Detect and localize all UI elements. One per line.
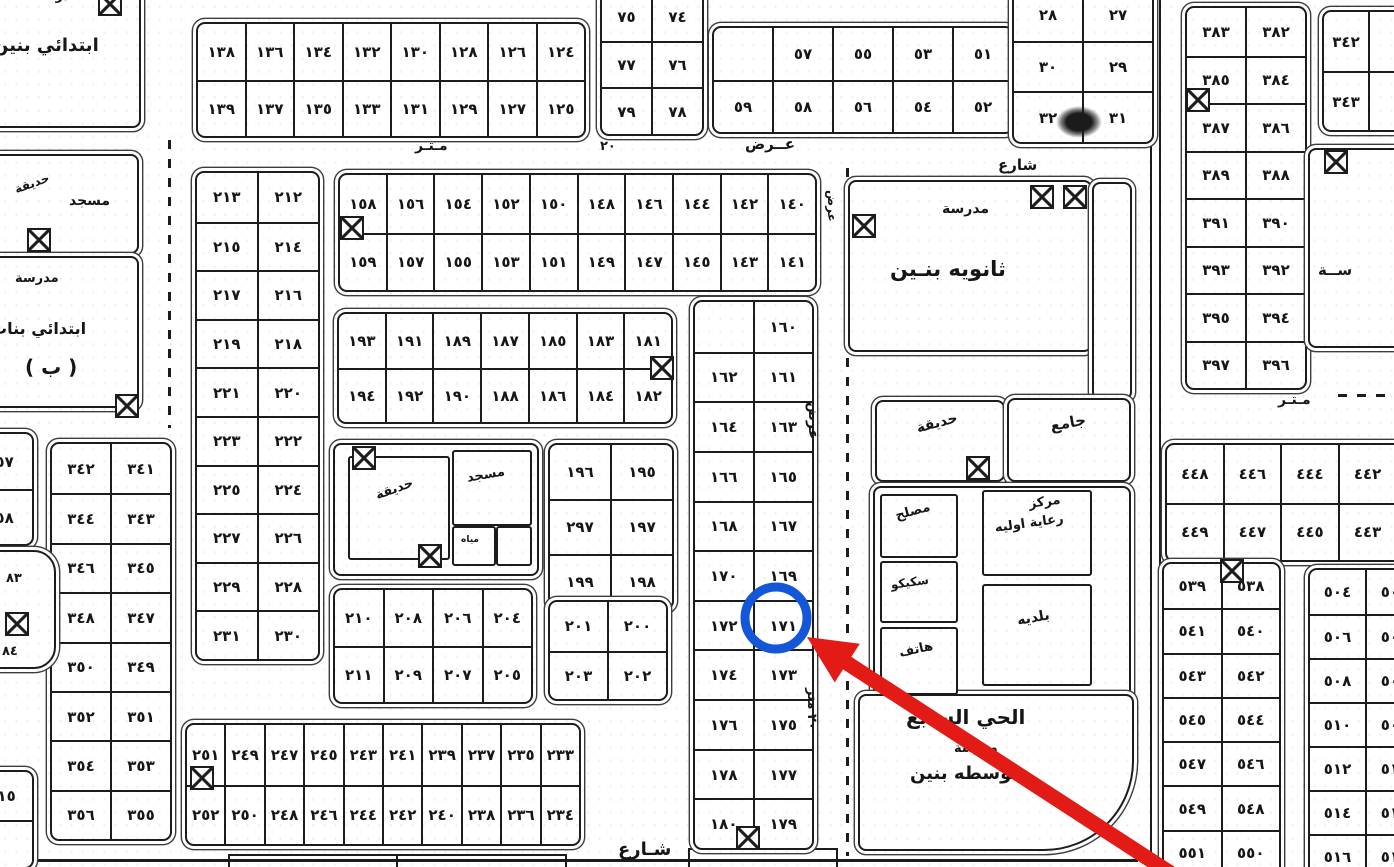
plot-row: ٧٥٧٤: [602, 0, 702, 41]
plot-cell: [1368, 12, 1394, 71]
district-middle-school-label: الحي السابع: [906, 706, 1025, 728]
jami-mosque-label: جامع: [1049, 412, 1087, 434]
plot-cell: ٤٤٩: [1167, 503, 1223, 561]
plot-cell: ٥٤٣: [1164, 653, 1221, 697]
plot-cell: [1368, 71, 1394, 130]
plot-cell: ٢٠٥: [482, 646, 532, 702]
school-boys-primary: مدرسةابتدائي بنين: [0, 0, 141, 128]
plot-row: ٣٥٨: [0, 489, 32, 544]
complex-garden-label: حديقة: [374, 477, 416, 504]
plot-cell: ٢٢٧: [197, 513, 257, 562]
plot-cell: ٧٥: [602, 0, 651, 41]
plot-cell: ٢٤٤: [343, 785, 382, 845]
plot-cell: ١٢٦: [487, 24, 536, 80]
plot-cell: ٥٧: [772, 28, 832, 80]
plot-cell: ١٦٤: [695, 401, 753, 451]
plot-cell: ٥٤٧: [1164, 741, 1221, 785]
plot-cell: ٥٤٠: [1221, 608, 1280, 652]
plot-cell: ٥٠٣: [1365, 570, 1394, 614]
utility-xbox-icon: [418, 544, 442, 568]
maslah-office: مصلح: [880, 494, 958, 558]
street-label: مـتـر: [1278, 393, 1311, 408]
telephone-office-label: هاتف: [898, 640, 934, 661]
plot-row: ٢٠١٢٠٠: [550, 602, 666, 651]
plot-row: ٥٠٨٥٠٧: [1310, 658, 1394, 702]
plot-cell: ١٤٣: [720, 233, 768, 291]
plot-cell: ٢٤٦: [303, 785, 342, 845]
plot-cell: ٢٣٩: [421, 725, 460, 785]
plot-cell: ٢٣٥: [500, 725, 539, 785]
plot-cell: ١٤٦: [624, 175, 672, 233]
primary-care-center-label: مركز: [1028, 494, 1061, 513]
right-edge-building: ســة: [1308, 148, 1394, 348]
plot-cell: ٣٩٦: [1245, 341, 1305, 389]
plot-cell: ٣٤٧: [110, 592, 170, 641]
plot-cell: ٣٨٦: [1245, 103, 1305, 151]
plot-cell: ٢١٠: [335, 590, 383, 646]
red-arrow-head-icon: [807, 637, 860, 682]
plot-cell: ٢٢٢: [257, 416, 319, 465]
plot-block-341-356: ٣٤٢٣٤١٣٤٤٣٤٣٣٤٦٣٤٥٣٤٨٣٤٧٣٥٠٣٤٩٣٥٢٣٥١٣٥٤٣…: [50, 442, 172, 841]
mosque-garden-west: حديقةمسجد: [0, 154, 139, 254]
plot-row: ١٦٠: [695, 302, 812, 352]
plot-cell: ٣٩١: [1187, 198, 1245, 246]
plot-row: ٤٤٨٤٤٦٤٤٤٤٤٢٤٤٠: [1167, 445, 1394, 503]
plot-cell: ١٩٥: [610, 445, 672, 499]
plot-cell: ٣٥١: [110, 691, 170, 740]
district-middle-school: الحي السابعمدرسةمتوسطه بنين: [858, 694, 1134, 851]
plot-cell: ٣٠: [1014, 41, 1082, 92]
school-secondary-boys-label: مدرسة: [942, 202, 989, 217]
plot-block-124-139: ١٣٨١٣٦١٣٤١٣٢١٣٠١٢٨١٢٦١٢٤١٣٩١٣٧١٣٥١٣٣١٣١١…: [196, 22, 586, 138]
plot-cell: ٤٤٧: [1223, 503, 1281, 561]
plot-row: ٥١٤٥١٣: [1310, 790, 1394, 834]
plot-cell: ٢٣٨: [461, 785, 500, 845]
plot-cell: ٣٥٥: [110, 790, 170, 839]
plot-cell: ١٦١: [753, 352, 813, 402]
plot-row: ٢١٩٢١٨: [197, 319, 318, 368]
plot-row: ٥٤٣٥٤٢: [1164, 653, 1279, 697]
plot-cell: ٢١٤: [257, 222, 319, 271]
plot-cell: [0, 820, 32, 867]
plot-cell: ٢١٦: [257, 270, 319, 319]
plot-cell: ١٣٥: [293, 80, 342, 136]
plot-cell: ١٤٢: [720, 175, 768, 233]
plot-block-140-159: ١٥٨١٥٦١٥٤١٥٢١٥٠١٤٨١٤٦١٤٤١٤٢١٤٠١٥٩١٥٧١٥٥١…: [338, 173, 817, 292]
plot-cell: ٢٢٦: [257, 513, 319, 562]
plot-cell: ١٣١: [390, 80, 439, 136]
plot-cell: ٥٤: [892, 80, 952, 132]
plot-cell: ١٦٨: [695, 501, 753, 551]
plot-row: ٢٠٣٢٠٢: [550, 651, 666, 700]
plot-cell: ١٥١: [529, 233, 577, 291]
plot-row: ٢٢٩٢٢٨: [197, 562, 318, 611]
plot-cell: ٤٤٥: [1280, 503, 1338, 561]
garden-park-label: حديقة: [915, 411, 960, 437]
plot-cell: ٣٨٤: [1245, 56, 1305, 104]
plot-row: ١٩٤١٩٢١٩٠١٨٨١٨٦١٨٤١٨٢: [339, 368, 671, 422]
plot-cell: ٣٨٩: [1187, 151, 1245, 199]
plot-cell: ٢٠٦: [432, 590, 482, 646]
plot-cell: ٣٤٤: [52, 493, 110, 542]
plot-cell: ١٦٧: [753, 501, 813, 551]
plot-cell: ٢٢٥: [197, 465, 257, 514]
plot-cell: ٥٢: [952, 80, 1012, 132]
utility-xbox-icon: [190, 766, 214, 790]
sceco-electric-label: سكيكو: [890, 574, 930, 592]
plot-row: ١٩٦١٩٥: [550, 445, 672, 499]
plot-cell: ١٦٥: [753, 451, 813, 501]
plot-cell: ٢٨: [1014, 0, 1082, 41]
plot-cell: ١٣٠: [390, 24, 439, 80]
plot-cell: ٢٣١: [197, 610, 257, 659]
street-line: [836, 848, 838, 867]
plot-cell: ١٤٥: [672, 233, 720, 291]
plot-cell: ٢٢١: [197, 367, 257, 416]
plot-cell: ١٥٥: [433, 233, 481, 291]
telephone-office: هاتف: [880, 627, 958, 695]
plot-cell: ١٧٨: [695, 749, 753, 799]
plot-cell: ١٤٠: [767, 175, 815, 233]
plot-cell: ٤٤٣: [1338, 503, 1394, 561]
plot-cell: ٣٥٦: [52, 790, 110, 839]
school-boys-primary-label: مدرسة: [35, 0, 79, 4]
utility-xbox-icon: [27, 228, 51, 252]
plot-row: ٢١٧٢١٦: [197, 270, 318, 319]
plot-row: ٣٥٤٣٥٣: [52, 740, 170, 789]
municipality: بلديه: [982, 584, 1092, 686]
street-label: شارع: [998, 157, 1037, 174]
plot-cell: ١٨٥: [528, 314, 576, 368]
plot-row: ٥١٢٥١١: [1310, 746, 1394, 790]
plot-row: ٥٤٩٥٤٨: [1164, 785, 1279, 829]
complex-water-room: مياه: [452, 526, 496, 566]
district-middle-school-label: متوسطه بنين: [910, 764, 1030, 784]
plot-cell: ٣٩٤: [1245, 293, 1305, 341]
jami-mosque: جامع: [1007, 398, 1131, 482]
plot-cell: ٣٩٠: [1245, 198, 1305, 246]
street-label: ٨٤: [2, 645, 18, 659]
plot-cell: ١٤٤: [672, 175, 720, 233]
plot-cell: ٣٤١: [110, 444, 170, 493]
plot-cell: ١٣٢: [342, 24, 391, 80]
plot-row: ٢٩٧١٩٧: [550, 499, 672, 553]
utility-xbox-icon: [340, 216, 364, 240]
plot-row: ١٦٨١٦٧: [695, 501, 812, 551]
plot-cell: ١٩٦: [550, 445, 610, 499]
plot-row: ١٧٠١٦٩: [695, 550, 812, 600]
plot-block-440-449: ٤٤٨٤٤٦٤٤٤٤٤٢٤٤٠٤٤٩٤٤٧٤٤٥٤٤٣٤٤١: [1165, 443, 1394, 562]
plot-cell: ٢٠٩: [383, 646, 433, 702]
street-line: [168, 140, 171, 428]
plot-cell: ٢١٢: [257, 173, 319, 222]
plot-row: ٣٠٢٩: [1014, 41, 1152, 92]
plot-cell: ١٧٩: [753, 798, 813, 848]
empty-area: [714, 28, 772, 80]
plot-row: ٢١١٢٠٩٢٠٧٢٠٥: [335, 646, 531, 702]
street-line: [0, 859, 1138, 862]
utility-xbox-icon: [1324, 150, 1348, 174]
plot-cell: ٥٠٥: [1365, 614, 1394, 658]
plot-cell: ٣٩٧: [1187, 341, 1245, 389]
plot-cell: ٢٠١: [550, 602, 607, 651]
plot-cell: ١٧٤: [695, 649, 753, 699]
plot-row: ١٣٨١٣٦١٣٤١٣٢١٣٠١٢٨١٢٦١٢٤: [198, 24, 584, 80]
plot-block-515: ٥١٥: [0, 770, 34, 867]
plot-cell: ٤٤٦: [1223, 445, 1281, 503]
plot-block-233-252: ٢٥١٢٤٩٢٤٧٢٤٥٢٤٣٢٤١٢٣٩٢٣٧٢٣٥٢٣٣٢٥٢٢٥٠٢٤٨٢…: [185, 723, 581, 846]
utility-xbox-icon: [650, 356, 674, 380]
plot-row: ٥٥١٥٥٠: [1164, 830, 1279, 867]
plot-cell: ٥٤٥: [1164, 697, 1221, 741]
street-label: مـتـر: [415, 139, 448, 154]
plot-cell: ٢٢٤: [257, 465, 319, 514]
plot-row: ٧٧٧٦: [602, 41, 702, 88]
plot-row: [0, 820, 32, 867]
plot-row: ٥٠٤٥٠٣: [1310, 570, 1394, 614]
plot-cell: ١٨٣: [576, 314, 624, 368]
street-label: ٢٠: [600, 140, 616, 154]
plot-cell: ٢٠٨: [383, 590, 433, 646]
plot-block-51-59: ٥٧٥٥٥٣٥١٥٩٥٨٥٦٥٤٥٢: [712, 26, 1014, 134]
plot-row: ٤٤٩٤٤٧٤٤٥٤٤٣٤٤١: [1167, 503, 1394, 561]
school-corridor: [1092, 182, 1132, 400]
plot-cell: ١٤١: [767, 233, 815, 291]
utility-xbox-icon: [98, 0, 122, 16]
plot-cell: ١٩٤: [339, 368, 385, 422]
plot-block-503-516: ٥٠٤٥٠٣٥٠٦٥٠٥٥٠٨٥٠٧٥١٠٥٠٩٥١٢٥١١٥١٤٥١٣٥١٦٥…: [1308, 568, 1394, 867]
street-line: [396, 854, 398, 867]
utility-xbox-icon: [736, 826, 760, 850]
plot-cell: ١٨٨: [480, 368, 528, 422]
street-label: عرض: [805, 402, 820, 439]
plot-cell: ٥١٠: [1310, 702, 1365, 746]
plot-cell: ٣٥٠: [52, 642, 110, 691]
plot-cell: ٥٤٨: [1221, 785, 1280, 829]
plot-cell: ٢٧: [1082, 0, 1152, 41]
plot-cell: ١٢٩: [439, 80, 488, 136]
plot-cell: ١٣٦: [245, 24, 294, 80]
plot-cell: ١٦٦: [695, 451, 753, 501]
street-label: شـارع: [618, 840, 671, 860]
plot-cell: ٥٠٦: [1310, 614, 1365, 658]
plot-row: ٣٨٩٣٨٨: [1187, 151, 1305, 199]
street-line: [565, 854, 567, 867]
plot-row: ٣٤٤٣٤٣: [52, 493, 170, 542]
plot-block-342-343: ٣٤٢٣٤٣: [1322, 10, 1394, 132]
ink-stain: [1056, 106, 1102, 138]
plot-cell: ١٦٠: [753, 302, 813, 352]
plot-cell: ١٧٧: [753, 749, 813, 799]
plot-cell: ٥٤٩: [1164, 785, 1221, 829]
plot-cell: ٢١٧: [197, 270, 257, 319]
plot-row: ١٩٣١٩١١٨٩١٨٧١٨٥١٨٣١٨١: [339, 314, 671, 368]
plot-cell: ١٩٠: [432, 368, 480, 422]
plot-cell: ٥٣: [892, 28, 952, 80]
plot-cell: ٧٧: [602, 41, 651, 88]
empty-area: [695, 302, 753, 352]
plot-cell: ١٣٨: [198, 24, 245, 80]
plot-cell: ٥٨: [772, 80, 832, 132]
plot-row: ١٧٨١٧٧: [695, 749, 812, 799]
plot-cell: ١٥٤: [433, 175, 481, 233]
school-girls-primary: مدرسةابتدائي بنات( ب ): [0, 256, 139, 408]
plot-cell: ٥٥: [832, 28, 892, 80]
plot-cell: ١٢٥: [536, 80, 585, 136]
street-label: عــرض: [745, 136, 795, 153]
plot-cell: ١٦٢: [695, 352, 753, 402]
plot-row: ٣٤٢: [1324, 12, 1394, 71]
scanned-plot-map: ١٣٨١٣٦١٣٤١٣٢١٣٠١٢٨١٢٦١٢٤١٣٩١٣٧١٣٥١٣٣١٣١١…: [0, 0, 1394, 867]
street-line: [688, 848, 690, 867]
plot-row: ١٥٨١٥٦١٥٤١٥٢١٥٠١٤٨١٤٦١٤٤١٤٢١٤٠: [340, 175, 815, 233]
plot-cell: ٢١١: [335, 646, 383, 702]
plot-row: ١٦٢١٦١: [695, 352, 812, 402]
plot-cell: ٢٩٧: [550, 499, 610, 553]
plot-row: ٣٥٢٣٥١: [52, 691, 170, 740]
plot-cell: ١٣٤: [293, 24, 342, 80]
plot-row: ٢٢٥٢٢٤: [197, 465, 318, 514]
primary-care-center-label: رعاية اوليه: [994, 512, 1064, 536]
plot-row: ٣٤٣: [1324, 71, 1394, 130]
plot-cell: ٥١٤: [1310, 790, 1365, 834]
primary-care-center: مركزرعاية اوليه: [982, 490, 1092, 576]
plot-cell: ٥٠٤: [1310, 570, 1365, 614]
plot-cell: ٣٥٧: [0, 434, 32, 489]
plot-cell: ٢٤٩: [224, 725, 263, 785]
plot-cell: ١٨٧: [480, 314, 528, 368]
plot-row: ٣٥٠٣٤٩: [52, 642, 170, 691]
street-line: [1159, 0, 1161, 862]
utility-xbox-icon: [352, 446, 376, 470]
plot-cell: ١٧٠: [695, 550, 753, 600]
utility-xbox-icon: [852, 214, 876, 238]
plot-cell: ٢٣٣: [540, 725, 579, 785]
plot-cell: ٣٤٣: [110, 493, 170, 542]
plot-row: ٢٥١٢٤٩٢٤٧٢٤٥٢٤٣٢٤١٢٣٩٢٣٧٢٣٥٢٣٣: [187, 725, 579, 785]
plot-row: ٥٤٧٥٤٦: [1164, 741, 1279, 785]
plot-cell: ١٥٦: [386, 175, 434, 233]
plot-cell: ٥٦: [832, 80, 892, 132]
plot-row: ٢١٥٢١٤: [197, 222, 318, 271]
plot-row: ٥٤١٥٤٠: [1164, 608, 1279, 652]
plot-cell: ١٤٩: [577, 233, 625, 291]
plot-cell: ٢٢٠: [257, 367, 319, 416]
plot-cell: ٣٤٣: [1324, 71, 1368, 130]
plot-cell: ٥١٢: [1310, 746, 1365, 790]
plot-row: ٥٠٦٥٠٥: [1310, 614, 1394, 658]
utility-xbox-icon: [1030, 185, 1054, 209]
plot-cell: ٥١: [952, 28, 1012, 80]
plot-cell: ٥١١: [1365, 746, 1394, 790]
plot-cell: ٢٢٣: [197, 416, 257, 465]
plot-cell: ٥٤٦: [1221, 741, 1280, 785]
plot-row: ٥١٦٥١٥: [1310, 834, 1394, 867]
plot-row: ١٦٤١٦٣: [695, 401, 812, 451]
plot-row: ١٧٦١٧٥: [695, 699, 812, 749]
mosque-garden-west-label: حديقة: [13, 172, 51, 197]
street-label: ٨٣: [6, 572, 22, 586]
plot-cell: ١٢٤: [536, 24, 585, 80]
plot-block-195-199: ١٩٦١٩٥٢٩٧١٩٧١٩٩١٩٨: [548, 443, 674, 610]
plot-cell: ٢٤٣: [343, 725, 382, 785]
plot-cell: ٢٤٠: [421, 785, 460, 845]
plot-row: ٥٩٥٨٥٦٥٤٥٢: [714, 80, 1012, 132]
plot-cell: ٥٤١: [1164, 608, 1221, 652]
plot-cell: ٢١٣: [197, 173, 257, 222]
plot-cell: ١٥٠: [529, 175, 577, 233]
plot-cell: ٢٤١: [382, 725, 421, 785]
plot-row: ٢٨٢٧: [1014, 0, 1152, 41]
plot-cell: ٢٥٠: [224, 785, 263, 845]
street-line: [1338, 394, 1394, 397]
plot-block-204-211: ٢١٠٢٠٨٢٠٦٢٠٤٢١١٢٠٩٢٠٧٢٠٥: [333, 588, 533, 704]
plot-row: ٣٥٦٣٥٥: [52, 790, 170, 839]
school-girls-primary-label: ( ب ): [25, 356, 77, 378]
plot-cell: ١٩٧: [610, 499, 672, 553]
district-middle-school-label: مدرسة: [954, 742, 998, 756]
utility-xbox-icon: [115, 394, 139, 418]
plot-cell: ١٧٢: [695, 600, 753, 650]
plot-cell: ١٦٩: [753, 550, 813, 600]
plot-row: ١٧٢١٧١: [695, 600, 812, 650]
right-edge-building-label: ســة: [1318, 262, 1352, 279]
plot-block-74-79: ٧٥٧٤٧٧٧٦٧٩٧٨: [600, 0, 704, 136]
plot-block-160-180: ١٦٠١٦٢١٦١١٦٤١٦٣١٦٦١٦٥١٦٨١٦٧١٧٠١٦٩١٧٢١٧١١…: [693, 300, 814, 850]
target-plot-cell: ١٧١: [753, 600, 813, 650]
utility-xbox-icon: [1220, 559, 1244, 583]
plot-block-212-231: ٢١٣٢١٢٢١٥٢١٤٢١٧٢١٦٢١٩٢١٨٢٢١٢٢٠٢٢٣٢٢٢٢٢٥٢…: [195, 171, 320, 661]
plot-cell: ٢٣٠: [257, 610, 319, 659]
plot-cell: ٣٤٦: [52, 543, 110, 592]
plot-row: ٣٩٣٣٩٢: [1187, 246, 1305, 294]
utility-xbox-icon: [5, 612, 29, 636]
plot-cell: ٢٣٦: [500, 785, 539, 845]
plot-block-200-203: ٢٠١٢٠٠٢٠٣٢٠٢: [548, 600, 668, 701]
plot-cell: ٣٤٩: [110, 642, 170, 691]
plot-row: ١٣٩١٣٧١٣٥١٣٣١٣١١٢٩١٢٧١٢٥: [198, 80, 584, 136]
municipality-label: بلديه: [1016, 608, 1051, 629]
plot-cell: ٣٨٢: [1245, 8, 1305, 56]
complex-small-room: [496, 526, 532, 566]
plot-cell: ١٤٨: [577, 175, 625, 233]
plot-cell: ٥١٥: [1365, 834, 1394, 867]
school-girls-primary-label: ابتدائي بنات: [0, 320, 86, 338]
plot-cell: ٢٢٨: [257, 562, 319, 611]
plot-cell: ٥٠٨: [1310, 658, 1365, 702]
plot-row: ٥١٥: [0, 772, 32, 820]
plot-cell: ١٩٣: [339, 314, 385, 368]
plot-block-181-194: ١٩٣١٩١١٨٩١٨٧١٨٥١٨٣١٨١١٩٤١٩٢١٩٠١٨٨١٨٦١٨٤١…: [337, 312, 673, 424]
plot-cell: ٢٤٢: [382, 785, 421, 845]
plot-cell: ٢١٩: [197, 319, 257, 368]
plot-row: ٣٨٣٣٨٢: [1187, 8, 1305, 56]
plot-cell: ٢٣٤: [540, 785, 579, 845]
plot-cell: ٢٤٥: [303, 725, 342, 785]
plot-row: ٢٢٣٢٢٢: [197, 416, 318, 465]
plot-cell: ٢٥٢: [187, 785, 224, 845]
plot-cell: ٥١٥: [0, 772, 32, 820]
plot-cell: ٣٥٤: [52, 740, 110, 789]
plot-cell: ١٥٧: [386, 233, 434, 291]
plot-cell: ٣٤٨: [52, 592, 110, 641]
plot-cell: ٧٦: [651, 41, 702, 88]
street-label: عرض: [825, 190, 838, 222]
plot-cell: ٥٤٢: [1221, 653, 1280, 697]
plot-cell: ٧٨: [651, 87, 702, 134]
plot-cell: ٣٨٨: [1245, 151, 1305, 199]
school-secondary-boys-label: ثانويه بنـين: [890, 258, 1006, 281]
